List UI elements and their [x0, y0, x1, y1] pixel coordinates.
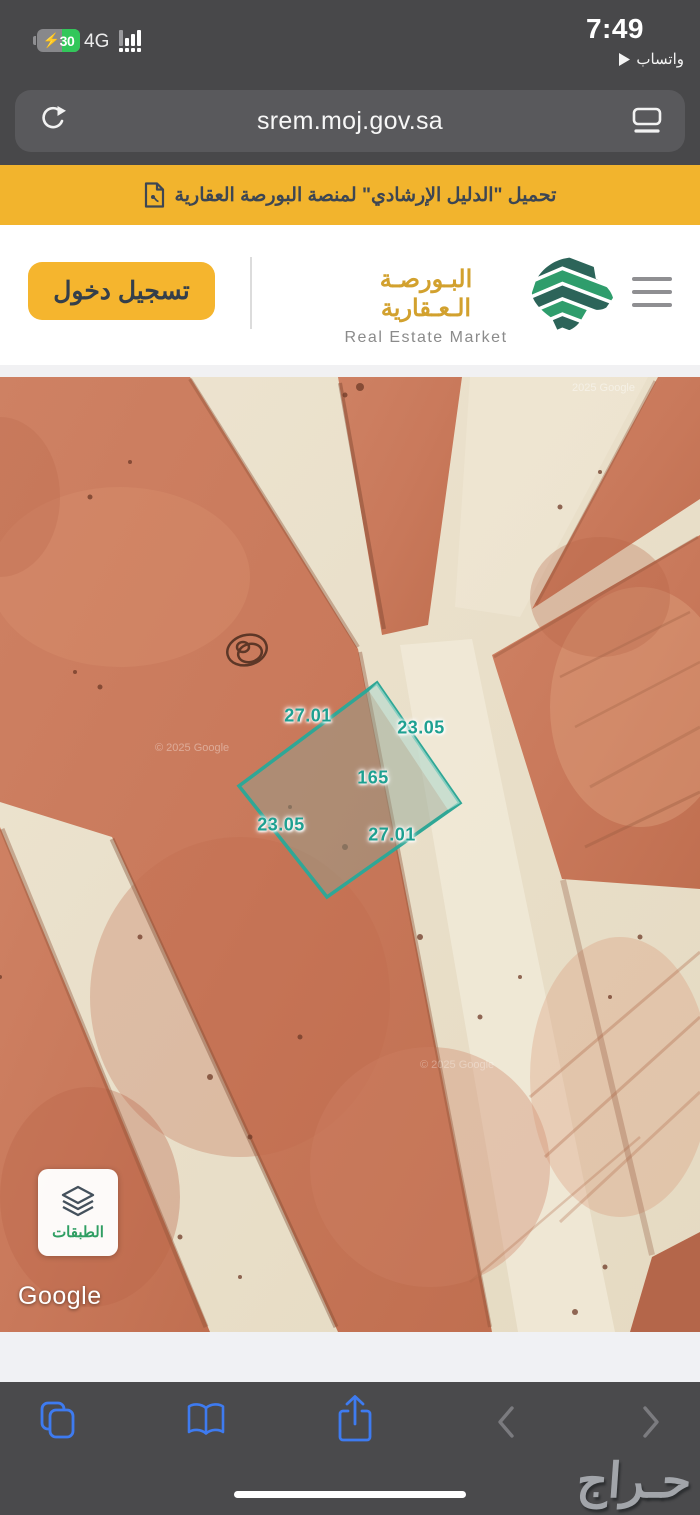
plot-edge-bottom-label: 27.01: [368, 825, 416, 846]
browser-toolbar: حـراج: [0, 1382, 700, 1515]
plot-edge-right-label: 23.05: [397, 718, 445, 739]
tab-layout-button[interactable]: [631, 106, 663, 136]
map-watermark: 2025 Google: [572, 382, 635, 394]
tabs-button[interactable]: [38, 1400, 78, 1443]
cellular-signal-icon: [119, 30, 153, 56]
address-bar[interactable]: srem.moj.gov.sa: [15, 90, 685, 152]
battery-indicator: ⚡30: [33, 29, 80, 52]
chevron-right-icon: [640, 1404, 662, 1440]
map-watermark: © 2025 Google: [420, 1059, 494, 1071]
tab-layout-icon: [631, 106, 663, 136]
plot-edge-left-label: 23.05: [257, 815, 305, 836]
bookmarks-button[interactable]: [185, 1402, 227, 1441]
clock: 7:49: [586, 13, 644, 45]
google-watermark-logo: Google: [18, 1282, 102, 1311]
map-watermark: © 2025 Google: [155, 742, 229, 754]
plot-area-label: 165: [357, 768, 389, 789]
pdf-document-icon: [144, 182, 165, 208]
status-bar: ⚡30 4G 7:49 واتساب: [0, 0, 700, 85]
header-divider: [250, 257, 252, 329]
menu-button[interactable]: [632, 277, 672, 307]
layers-icon: [60, 1184, 96, 1218]
battery-icon: ⚡30: [37, 29, 80, 52]
tabs-icon: [38, 1400, 78, 1440]
browser-address-row: srem.moj.gov.sa: [0, 85, 700, 165]
url-text: srem.moj.gov.sa: [15, 90, 685, 152]
haraj-watermark: حـراج: [575, 1453, 693, 1509]
phone-screen: ⚡30 4G 7:49 واتساب srem.moj.gov.sa: [0, 0, 700, 1515]
login-button[interactable]: تسجيل دخول: [28, 262, 215, 320]
plot-edge-top-label: 27.01: [284, 706, 332, 727]
forward-button[interactable]: [640, 1404, 662, 1443]
page-gap-strip: [0, 365, 700, 377]
page-gap-strip: [0, 1332, 700, 1382]
chevron-left-icon: [495, 1404, 517, 1440]
share-icon: [336, 1394, 374, 1444]
play-triangle-icon: [619, 53, 630, 66]
layers-label: الطبقات: [52, 1223, 104, 1241]
battery-percent: ⚡30: [37, 29, 80, 52]
guide-download-banner[interactable]: تحميل "الدليل الإرشادي" لمنصة البورصة ال…: [0, 165, 700, 225]
back-button[interactable]: [495, 1404, 517, 1443]
battery-cap: [33, 36, 36, 45]
site-header: تسجيل دخول البـورصـة الـعـقارية Real Est…: [0, 225, 700, 365]
home-indicator[interactable]: [234, 1491, 466, 1498]
brand-wordmark[interactable]: البـورصـة الـعـقارية Real Estate Market: [332, 265, 520, 347]
return-to-app-link[interactable]: واتساب: [619, 50, 684, 68]
share-button[interactable]: [336, 1394, 374, 1447]
brand-logo-icon[interactable]: [522, 253, 618, 339]
network-type-label: 4G: [84, 31, 109, 53]
brand-name-english: Real Estate Market: [332, 329, 520, 347]
brand-name-arabic: البـورصـة الـعـقارية: [332, 265, 520, 323]
layers-button[interactable]: الطبقات: [38, 1169, 118, 1256]
book-icon: [185, 1402, 227, 1438]
banner-text: تحميل "الدليل الإرشادي" لمنصة البورصة ال…: [175, 184, 557, 207]
return-app-label: واتساب: [636, 50, 684, 68]
satellite-map[interactable]: 2025 Google © 2025 Google © 2025 Google …: [0, 377, 700, 1332]
